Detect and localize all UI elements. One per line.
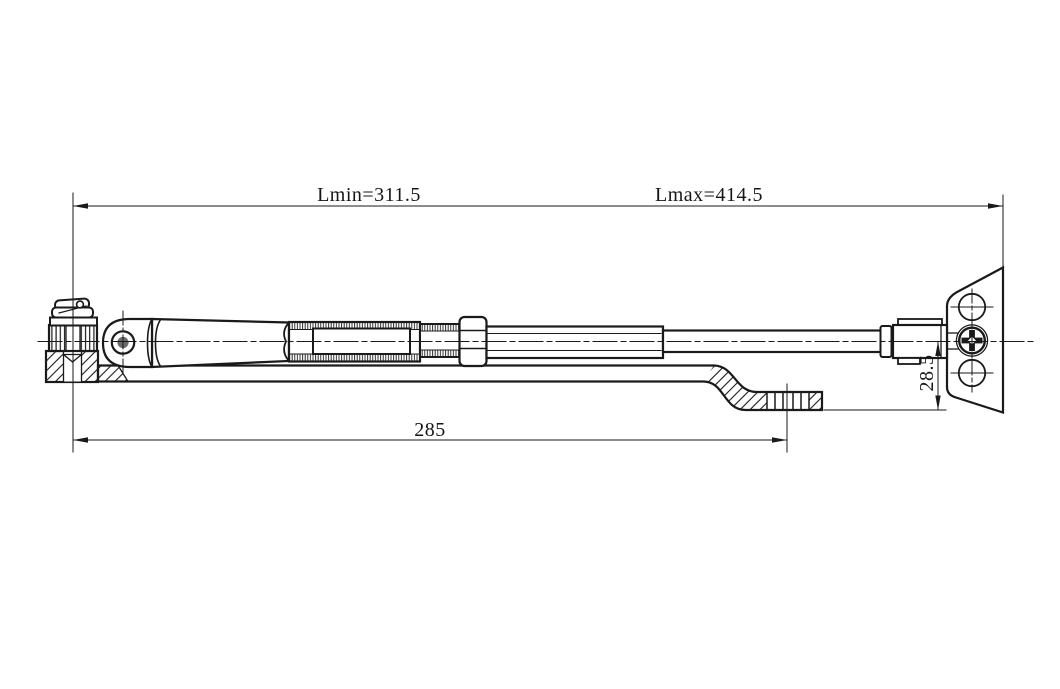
arrowhead-bottom-left xyxy=(73,437,88,442)
arrowhead-bottom-right xyxy=(772,437,787,442)
dimension-28-5-label: 28.5 xyxy=(916,355,938,392)
arrowhead-top-right xyxy=(988,203,1003,208)
arrowhead-top-left xyxy=(73,203,88,208)
arrowhead-offset-bottom xyxy=(935,396,940,411)
dimension-lmax-label: Lmax=414.5 xyxy=(655,184,763,206)
serrated-foot-end-hatch xyxy=(809,392,822,410)
dimensions: Lmin=311.5 Lmax=414.5 285 28.5 xyxy=(73,184,1003,452)
arm-tube-left xyxy=(152,319,289,367)
dimension-lmin-label: Lmin=311.5 xyxy=(317,184,421,206)
lower-arm-bend-hatch xyxy=(703,366,767,411)
drawing-sheet: Lmin=311.5 Lmax=414.5 285 28.5 xyxy=(0,0,1060,689)
anchor-bolt-assembly xyxy=(46,298,98,382)
drawing-root: Lmin=311.5 Lmax=414.5 285 28.5 xyxy=(38,184,1035,452)
lower-arm xyxy=(98,366,822,411)
threaded-adjuster-rod xyxy=(420,324,460,357)
mounting-bracket xyxy=(947,268,1003,413)
outer-tube xyxy=(487,327,664,359)
dimension-285-label: 285 xyxy=(414,419,446,441)
technical-drawing-canvas: Lmin=311.5 Lmax=414.5 285 28.5 xyxy=(0,0,1060,689)
